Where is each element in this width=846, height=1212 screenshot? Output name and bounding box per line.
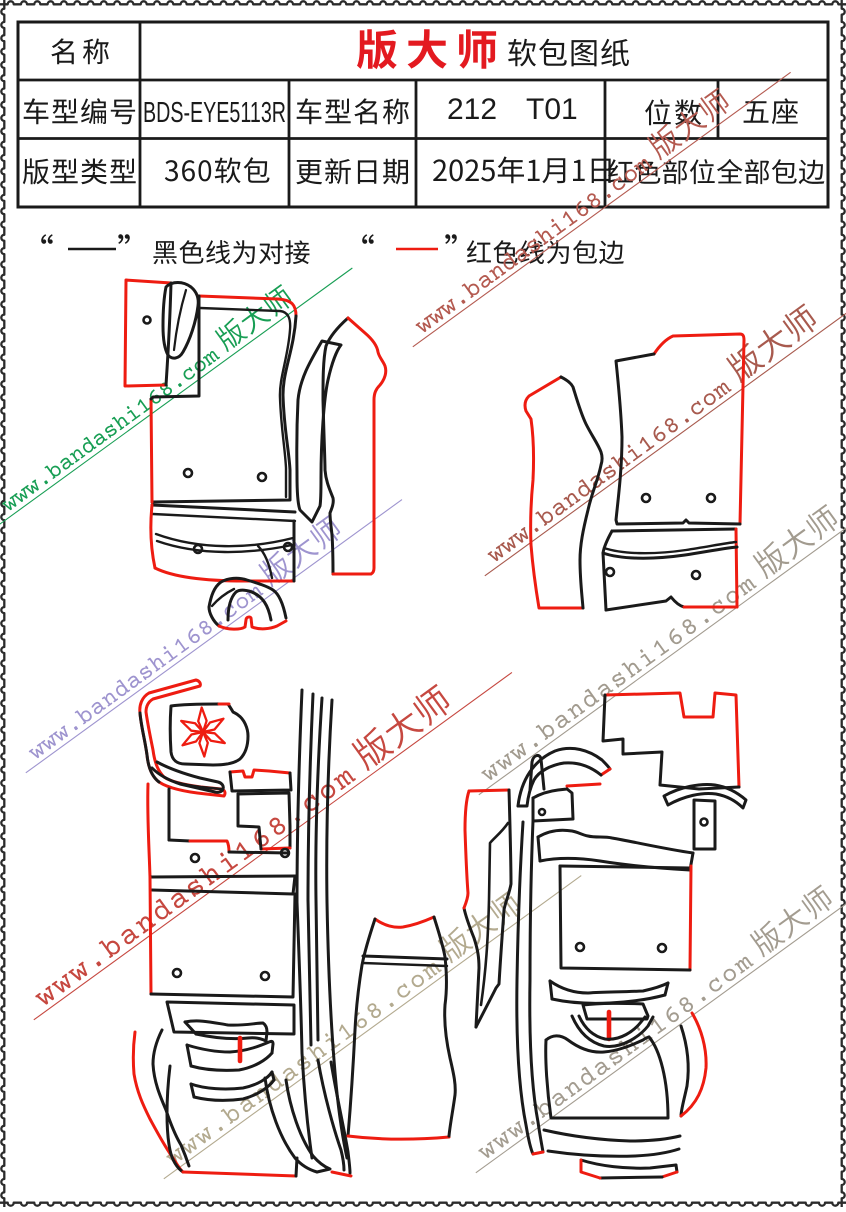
svg-text:BDS-EYE5113R: BDS-EYE5113R [143, 97, 286, 129]
svg-text:212: 212 [447, 93, 497, 126]
svg-text:T01: T01 [526, 93, 578, 126]
